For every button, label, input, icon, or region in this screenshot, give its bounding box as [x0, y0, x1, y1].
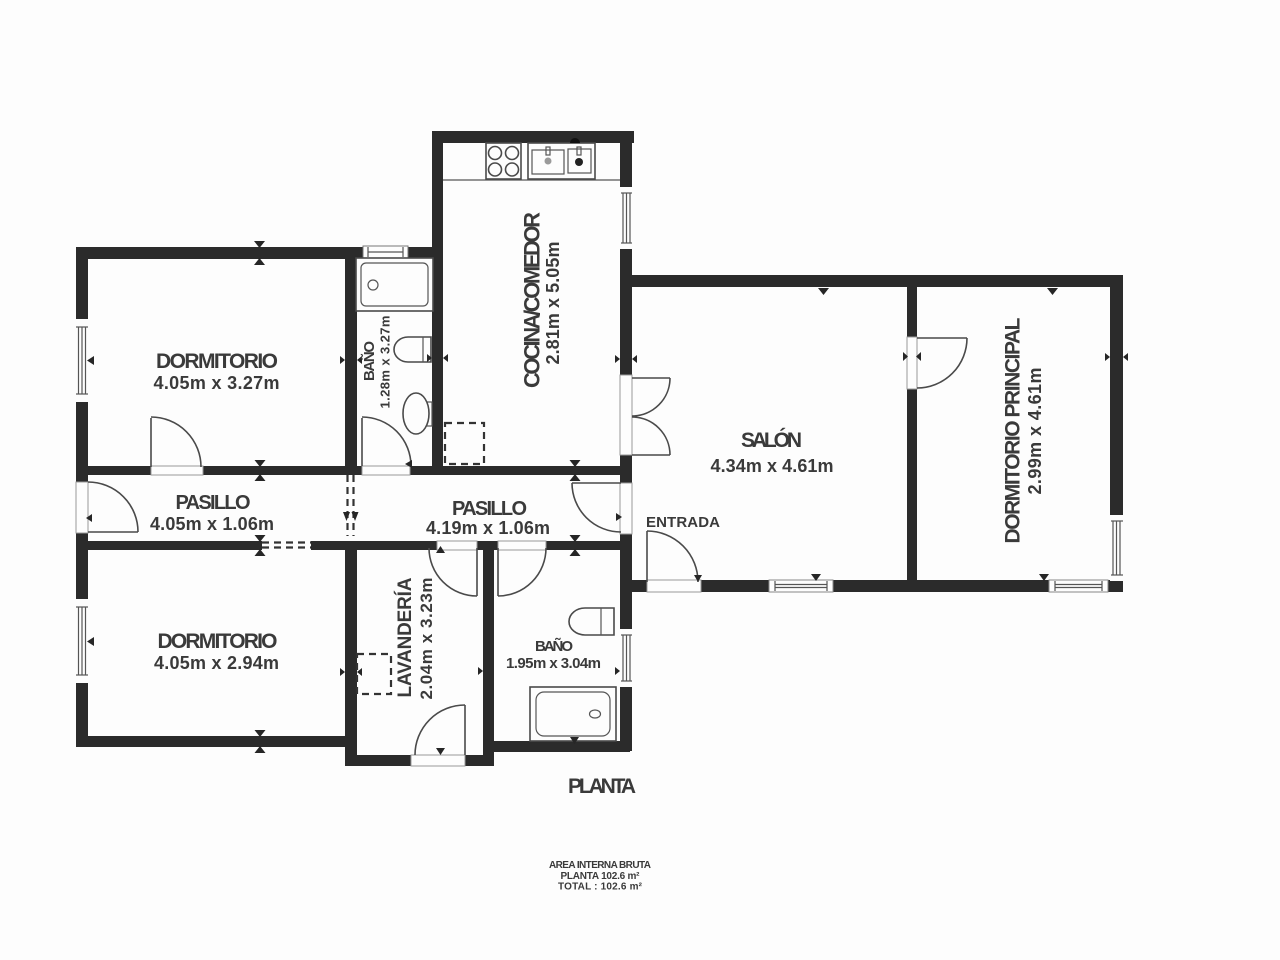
svg-text:BAÑO: BAÑO: [360, 341, 378, 381]
svg-text:LAVANDERÍA: LAVANDERÍA: [394, 577, 416, 697]
svg-text:PLANTA 102.6 m²: PLANTA 102.6 m²: [561, 871, 641, 882]
svg-text:4.34m x 4.61m: 4.34m x 4.61m: [711, 456, 834, 476]
svg-text:1.95m x 3.04m: 1.95m x 3.04m: [506, 655, 601, 672]
svg-text:4.19m x 1.06m: 4.19m x 1.06m: [426, 518, 550, 538]
svg-text:SALÓN: SALÓN: [741, 428, 802, 452]
svg-text:PLANTA: PLANTA: [568, 775, 636, 798]
svg-text:DORMITORIO: DORMITORIO: [156, 350, 278, 373]
svg-text:2.81m x 5.05m: 2.81m x 5.05m: [543, 242, 563, 365]
svg-text:COCINA/COMEDOR: COCINA/COMEDOR: [520, 212, 545, 388]
svg-text:DORMITORIO PRINCIPAL: DORMITORIO PRINCIPAL: [1002, 317, 1025, 543]
svg-text:AREA INTERNA BRUTA: AREA INTERNA BRUTA: [549, 860, 651, 871]
svg-text:PASILLO: PASILLO: [452, 498, 527, 520]
svg-text:DORMITORIO: DORMITORIO: [158, 630, 278, 653]
svg-text:ENTRADA: ENTRADA: [646, 514, 720, 531]
svg-text:4.05m x 2.94m: 4.05m x 2.94m: [154, 653, 279, 673]
svg-text:TOTAL : 102.6 m²: TOTAL : 102.6 m²: [558, 882, 643, 893]
svg-text:4.05m x 3.27m: 4.05m x 3.27m: [154, 373, 280, 393]
svg-text:PASILLO: PASILLO: [176, 492, 251, 514]
svg-text:4.05m x 1.06m: 4.05m x 1.06m: [150, 514, 274, 534]
svg-text:2.04m x 3.23m: 2.04m x 3.23m: [417, 578, 436, 700]
svg-text:2.99m x 4.61m: 2.99m x 4.61m: [1025, 368, 1045, 495]
svg-text:1.28m x 3.27m: 1.28m x 3.27m: [378, 316, 393, 409]
svg-text:BAÑO: BAÑO: [535, 637, 573, 655]
